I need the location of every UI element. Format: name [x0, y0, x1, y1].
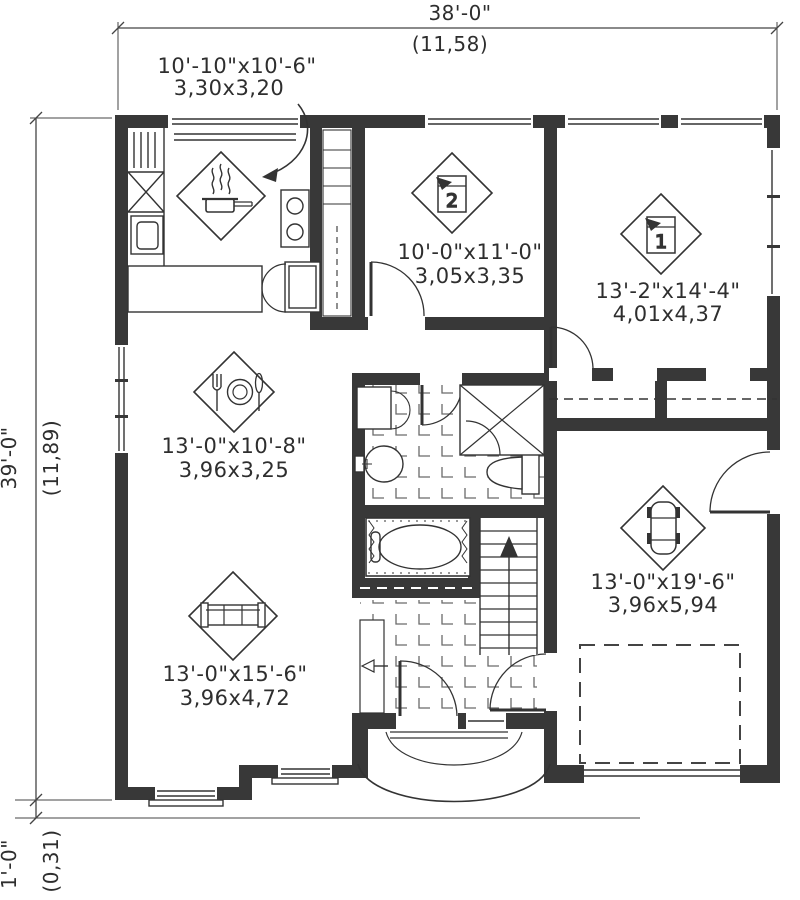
dining-size-imperial: 13'-0"x10'-8"	[161, 434, 306, 458]
kitchen-window	[168, 115, 300, 140]
bathtub	[366, 518, 470, 576]
plate-cutlery-icon	[194, 352, 274, 432]
bedroom2-number: 2	[446, 190, 458, 212]
kitchen-sink	[131, 216, 163, 254]
kitchen-peninsula-counter	[128, 266, 262, 312]
bed-number-1-icon: 1	[621, 194, 701, 274]
porch-offset-imperial: 1'-0"	[0, 839, 21, 889]
bedroom1-size-imperial: 13'-2"x14'-4"	[595, 279, 740, 303]
floor-plan-canvas: 2 1	[0, 0, 800, 900]
front-sidelight-window	[466, 713, 506, 729]
bedroom1-side-window	[767, 148, 780, 296]
overall-width-imperial: 38'-0"	[428, 1, 491, 25]
entry-steps	[390, 732, 508, 738]
bedroom1-window-right	[678, 115, 764, 128]
bedroom2-size-imperial: 10'-0"x11'-0"	[397, 240, 542, 264]
porch	[358, 732, 550, 802]
overall-depth-imperial: 39'-0"	[0, 426, 21, 489]
staircase	[480, 518, 538, 655]
corner-shower	[460, 385, 544, 455]
floor-plan-page: 2 1	[0, 0, 800, 900]
bedroom1-number: 1	[655, 231, 667, 253]
garage-door	[584, 765, 740, 783]
bedroom2-size-metric: 3,05x3,35	[415, 264, 525, 288]
kitchen-size-metric: 3,30x3,20	[174, 76, 284, 100]
dishwasher	[134, 132, 155, 168]
garage-side-door	[710, 452, 770, 512]
cooking-pot-icon	[177, 152, 265, 240]
dining-window	[115, 345, 128, 453]
overall-depth-metric: (11,89)	[39, 420, 63, 496]
parking-space-dashed	[580, 645, 740, 763]
corner-cabinet	[128, 172, 164, 212]
stove	[281, 190, 309, 247]
overall-width-metric: (11,58)	[412, 32, 488, 56]
bedroom2-window	[425, 115, 533, 128]
dimension-left: 39'-0" (11,89)	[0, 112, 112, 806]
living-window-left	[149, 787, 223, 806]
garage-items	[580, 645, 740, 763]
living-window-right	[272, 765, 338, 784]
bed-number-2-icon: 2	[412, 153, 492, 233]
sofa-icon	[189, 572, 277, 660]
bedroom1-door	[551, 327, 593, 368]
car-icon	[621, 486, 705, 570]
dining-size-metric: 3,96x3,25	[179, 458, 289, 482]
garage-size-metric: 3,96x5,94	[608, 593, 718, 617]
dimension-bottom-left: 1'-0" (0,31)	[0, 800, 640, 893]
refrigerator	[262, 262, 320, 312]
living-size-metric: 3,96x4,72	[180, 686, 290, 710]
kitchen-size-imperial: 10'-10"x10'-6"	[158, 54, 317, 78]
bedroom1-size-metric: 4,01x4,37	[613, 302, 723, 326]
living-size-imperial: 13'-0"x15'-6"	[162, 662, 307, 686]
pantry-shelves	[323, 130, 351, 316]
bedroom1-window-left	[565, 115, 661, 128]
garage-size-imperial: 13'-0"x19'-6"	[590, 570, 735, 594]
porch-offset-metric: (0,31)	[39, 829, 63, 892]
